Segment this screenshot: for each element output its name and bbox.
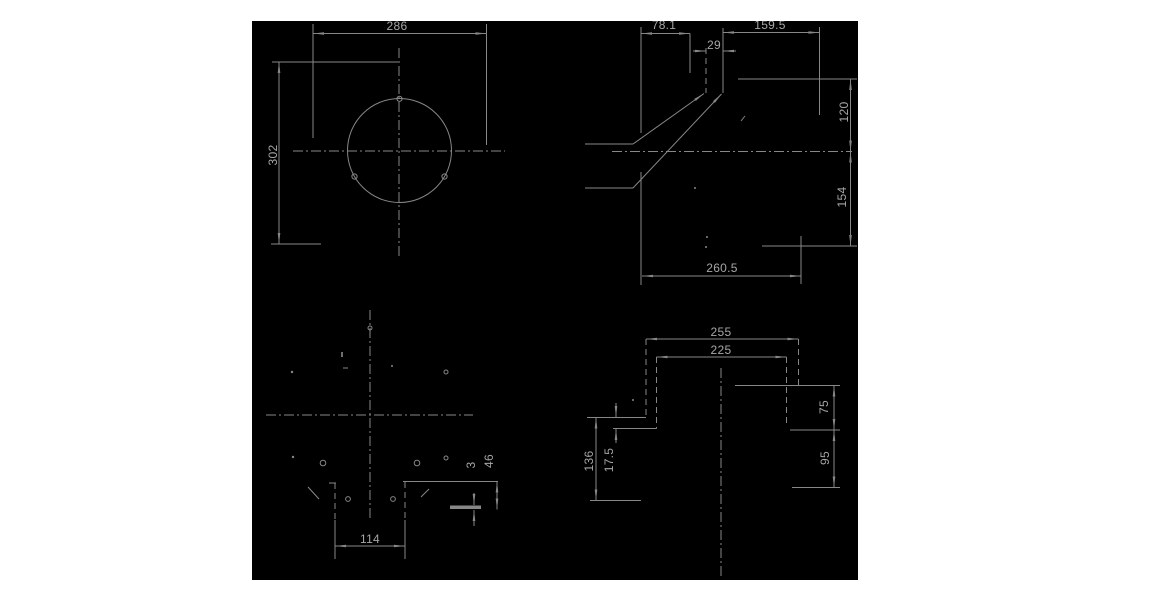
chamfer-edge <box>421 489 429 497</box>
dim-label: 3 <box>464 461 478 468</box>
dim-label: 120 <box>837 102 851 123</box>
speck <box>391 365 393 367</box>
dim-label: 75 <box>817 400 831 414</box>
speck <box>706 236 708 238</box>
dim-label: 29 <box>707 38 721 52</box>
dim-label-height: 302 <box>266 145 280 166</box>
dim-label: 154 <box>835 187 849 208</box>
dim-label: 114 <box>360 532 380 546</box>
bend-leader-lower <box>633 94 722 188</box>
hole-circle <box>444 370 448 374</box>
dim-label: 46 <box>482 454 496 468</box>
dim-label: 17.5 <box>602 448 616 473</box>
view-bottom-detail: 114 3 46 <box>266 310 498 559</box>
chamfer-edge <box>308 487 319 499</box>
cad-viewport: 286 302 <box>252 21 858 580</box>
view-front-circle: 286 302 <box>266 21 505 256</box>
hole-circle <box>320 460 326 466</box>
bend-leader-upper <box>633 94 704 145</box>
dim-label: 159.5 <box>754 21 786 32</box>
thin-plate-edge <box>450 506 481 510</box>
hole-circle <box>414 460 420 466</box>
dim-label-width: 286 <box>387 21 408 33</box>
dim-label: 78.1 <box>652 21 677 32</box>
dim-label: 260.5 <box>706 261 738 275</box>
technical-drawing: 286 302 <box>252 21 858 580</box>
speck <box>291 371 293 373</box>
hole-circle <box>391 497 396 502</box>
speck <box>632 399 634 401</box>
tick-mark <box>741 116 745 121</box>
dim-label: 136 <box>582 451 596 472</box>
dim-label: 255 <box>711 325 732 339</box>
hole-circle <box>346 497 351 502</box>
speck <box>292 456 294 458</box>
speck <box>705 246 707 248</box>
speck <box>694 187 696 189</box>
hole-circle <box>444 456 448 460</box>
view-side-profile: 78.1 29 159.5 120 154 260.5 <box>585 21 857 285</box>
dim-label: 225 <box>711 343 732 357</box>
view-bracket-front: 255 225 75 95 136 17.5 <box>582 325 840 577</box>
main-circle <box>348 99 452 203</box>
dim-label: 95 <box>818 451 832 465</box>
drawing-linework: 286 302 <box>266 21 857 577</box>
